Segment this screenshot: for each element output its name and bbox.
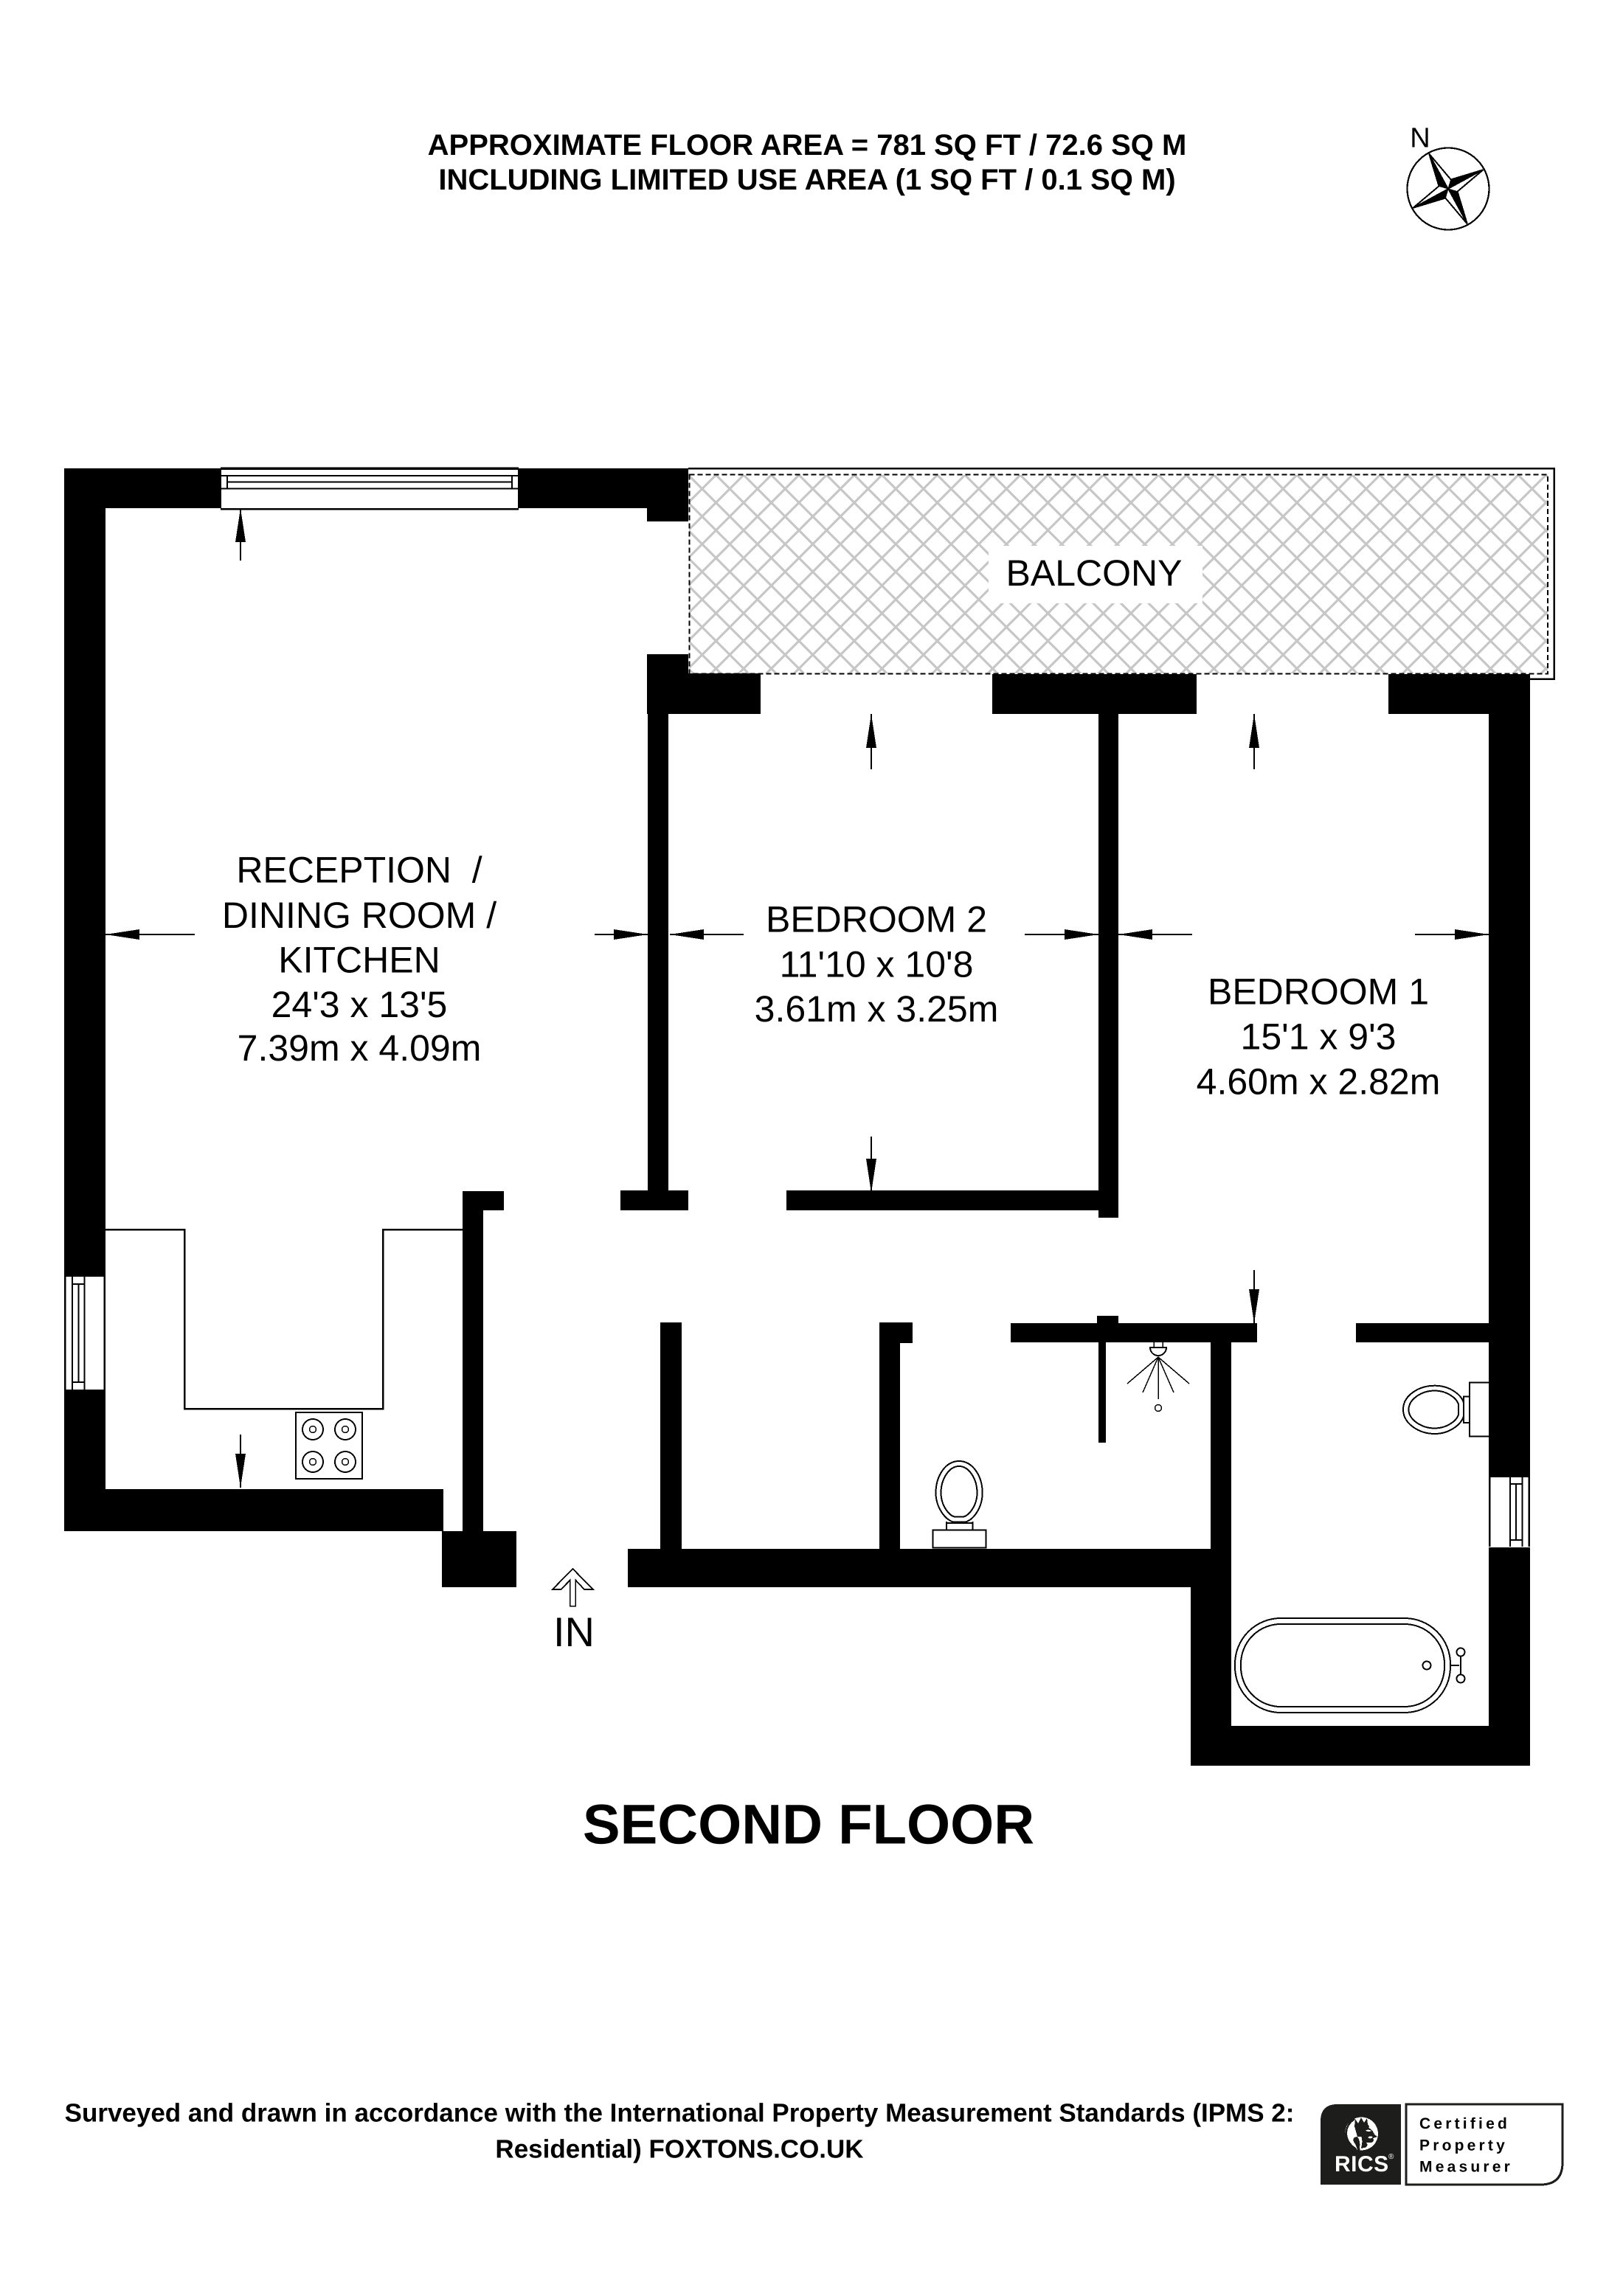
svg-text:4.60m x 2.82m: 4.60m x 2.82m	[1197, 1061, 1441, 1103]
svg-text:RICS: RICS	[1335, 2152, 1389, 2177]
svg-text:Certified: Certified	[1419, 2115, 1510, 2132]
svg-text:Measurer: Measurer	[1419, 2159, 1513, 2176]
svg-text:7.39m x 4.09m: 7.39m x 4.09m	[238, 1027, 482, 1069]
svg-text:3.61m x 3.25m: 3.61m x 3.25m	[755, 988, 999, 1030]
svg-text:KITCHEN: KITCHEN	[278, 940, 440, 981]
svg-text:BEDROOM 1: BEDROOM 1	[1208, 971, 1429, 1013]
svg-text:11'10 x 10'8: 11'10 x 10'8	[780, 944, 974, 985]
svg-text:BALCONY: BALCONY	[1006, 552, 1183, 594]
svg-text:Residential) FOXTONS.CO.UK: Residential) FOXTONS.CO.UK	[495, 2135, 863, 2164]
svg-text:INCLUDING LIMITED USE AREA (1: INCLUDING LIMITED USE AREA (1 SQ FT / 0.…	[438, 164, 1175, 196]
svg-text:BEDROOM 2: BEDROOM 2	[766, 899, 987, 940]
svg-text:15'1 x 9'3: 15'1 x 9'3	[1241, 1016, 1397, 1058]
svg-text:IN: IN	[553, 1609, 595, 1655]
svg-text:RECEPTION /: RECEPTION /	[236, 850, 482, 891]
svg-text:Property: Property	[1419, 2137, 1508, 2154]
svg-text:N: N	[1410, 123, 1430, 154]
svg-text:Surveyed and drawn in accordan: Surveyed and drawn in accordance with th…	[65, 2099, 1295, 2128]
svg-text:24'3 x 13'5: 24'3 x 13'5	[271, 984, 448, 1025]
svg-text:SECOND FLOOR: SECOND FLOOR	[583, 1793, 1034, 1856]
svg-text:DINING ROOM /: DINING ROOM /	[222, 895, 496, 936]
svg-text:APPROXIMATE FLOOR AREA = 781 S: APPROXIMATE FLOOR AREA = 781 SQ FT / 72.…	[428, 129, 1187, 162]
svg-text:®: ®	[1388, 2153, 1394, 2161]
